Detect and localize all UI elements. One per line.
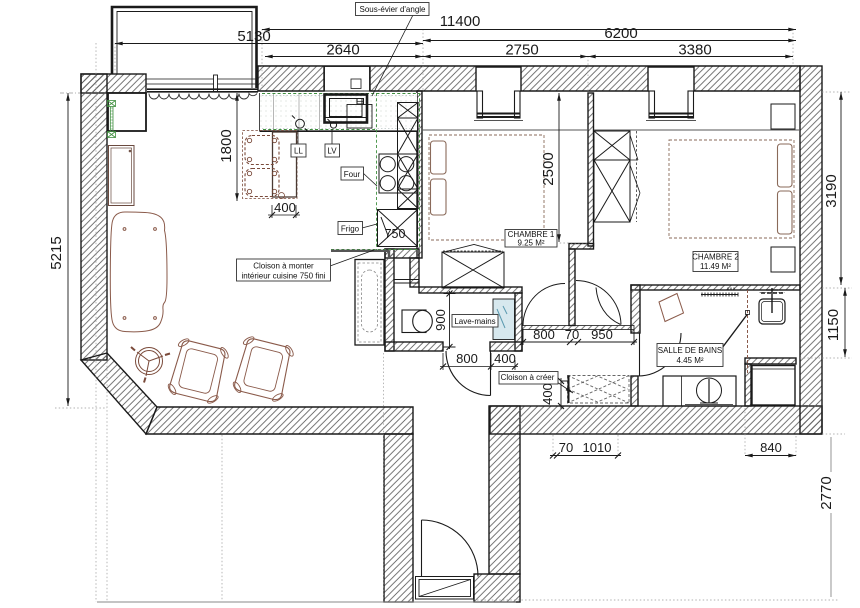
svg-text:2500: 2500: [540, 152, 557, 185]
svg-text:3190: 3190: [823, 174, 840, 207]
svg-text:900: 900: [433, 309, 448, 331]
svg-text:CHAMBRE 2: CHAMBRE 2: [692, 253, 739, 262]
svg-text:2770: 2770: [818, 476, 835, 509]
svg-text:840: 840: [760, 440, 782, 455]
svg-text:5215: 5215: [48, 236, 65, 269]
svg-text:400: 400: [274, 200, 296, 215]
svg-text:750: 750: [385, 227, 406, 241]
svg-text:Sous-évier d'angle: Sous-évier d'angle: [359, 5, 426, 14]
svg-text:1010: 1010: [583, 440, 612, 455]
svg-text:11.49 M²: 11.49 M²: [700, 262, 731, 271]
svg-text:9.25 M²: 9.25 M²: [517, 239, 544, 248]
svg-text:3380: 3380: [678, 42, 711, 59]
svg-text:800: 800: [456, 351, 478, 366]
svg-text:5130: 5130: [237, 28, 270, 45]
svg-text:1150: 1150: [825, 309, 842, 341]
svg-text:400: 400: [540, 383, 555, 405]
svg-text:SALLE DE BAINS: SALLE DE BAINS: [658, 346, 722, 355]
svg-text:1800: 1800: [218, 129, 235, 162]
svg-text:800: 800: [533, 327, 555, 342]
svg-text:70: 70: [559, 440, 573, 455]
svg-text:2750: 2750: [505, 42, 538, 59]
svg-text:intérieur cuisine 750 fini: intérieur cuisine 750 fini: [241, 272, 325, 281]
svg-text:4.45 M²: 4.45 M²: [676, 356, 703, 365]
svg-text:11400: 11400: [440, 13, 481, 30]
svg-text:Lave-mains: Lave-mains: [454, 317, 495, 326]
svg-text:LV: LV: [327, 147, 337, 156]
svg-text:950: 950: [591, 327, 613, 342]
svg-text:Cloison à monter: Cloison à monter: [253, 262, 314, 271]
svg-text:LL: LL: [294, 147, 303, 156]
svg-text:70: 70: [565, 327, 579, 342]
svg-text:Cloison à créer: Cloison à créer: [501, 373, 555, 382]
svg-text:2640: 2640: [326, 42, 359, 59]
svg-text:Frigo: Frigo: [341, 225, 360, 234]
svg-text:6200: 6200: [604, 25, 637, 42]
svg-text:400: 400: [494, 351, 516, 366]
svg-text:Four: Four: [344, 170, 361, 179]
